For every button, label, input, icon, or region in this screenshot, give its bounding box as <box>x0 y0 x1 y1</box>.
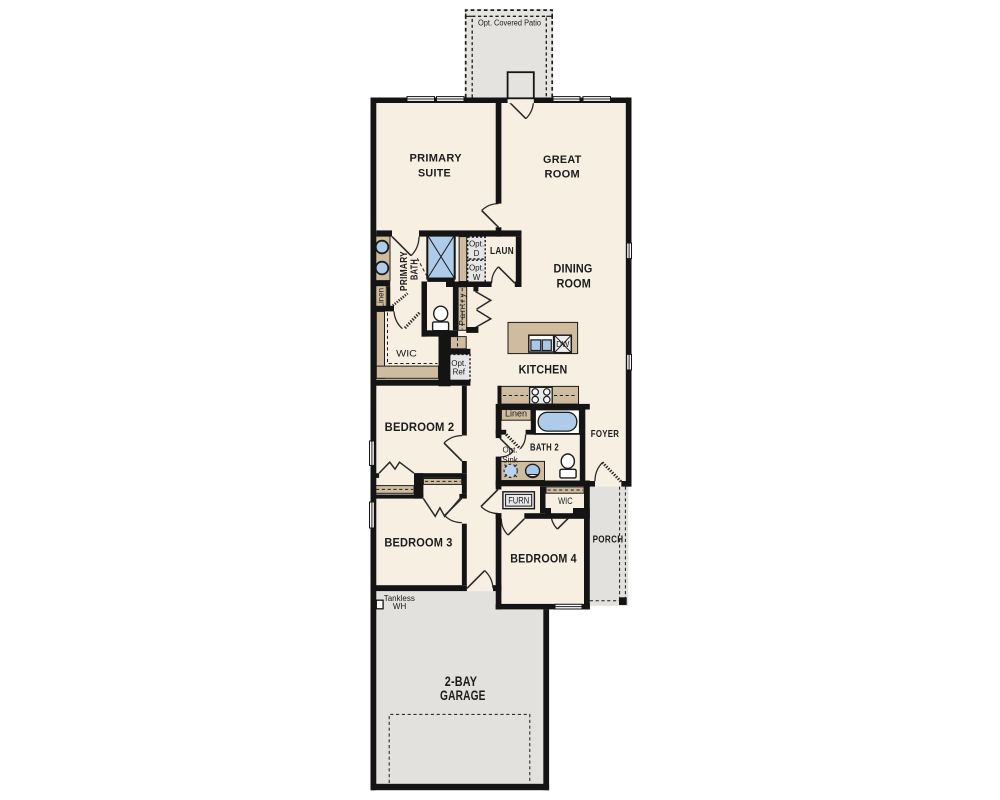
svg-text:Opt. Covered Patio: Opt. Covered Patio <box>478 19 541 28</box>
svg-text:PRIMARY: PRIMARY <box>409 153 462 165</box>
svg-text:ROOM: ROOM <box>545 168 581 180</box>
svg-text:DINING: DINING <box>554 261 593 275</box>
svg-text:WIC: WIC <box>558 496 573 506</box>
svg-text:GARAGE: GARAGE <box>440 688 486 703</box>
svg-text:PORCH: PORCH <box>593 533 624 545</box>
svg-text:Linen: Linen <box>376 288 385 308</box>
svg-text:DW: DW <box>556 340 570 349</box>
svg-text:Opt.: Opt. <box>469 240 484 249</box>
svg-text:GREAT: GREAT <box>543 154 582 166</box>
svg-text:LAUN: LAUN <box>490 245 514 257</box>
svg-text:FURN: FURN <box>508 496 529 506</box>
svg-text:2-BAY: 2-BAY <box>445 674 477 689</box>
svg-text:WIC: WIC <box>396 349 417 359</box>
svg-text:SUITE: SUITE <box>418 168 451 180</box>
svg-text:BEDROOM 2: BEDROOM 2 <box>385 420 455 434</box>
svg-text:Sink: Sink <box>502 456 519 465</box>
svg-text:Opt.: Opt. <box>469 263 484 272</box>
svg-text:BATH: BATH <box>409 259 421 280</box>
svg-text:FOYER: FOYER <box>591 428 620 440</box>
svg-text:Ref: Ref <box>453 367 466 376</box>
svg-text:WH: WH <box>393 602 407 611</box>
svg-text:BEDROOM 3: BEDROOM 3 <box>384 535 452 549</box>
svg-text:ROOM: ROOM <box>556 276 591 290</box>
svg-text:W: W <box>473 273 481 282</box>
svg-text:BATH 2: BATH 2 <box>530 441 559 453</box>
svg-text:Opt.: Opt. <box>502 446 517 455</box>
svg-text:BEDROOM 4: BEDROOM 4 <box>510 552 577 566</box>
svg-text:Pantry: Pantry <box>458 294 467 326</box>
svg-text:D: D <box>474 249 480 258</box>
svg-text:KITCHEN: KITCHEN <box>519 363 568 377</box>
svg-text:Linen: Linen <box>505 408 527 418</box>
